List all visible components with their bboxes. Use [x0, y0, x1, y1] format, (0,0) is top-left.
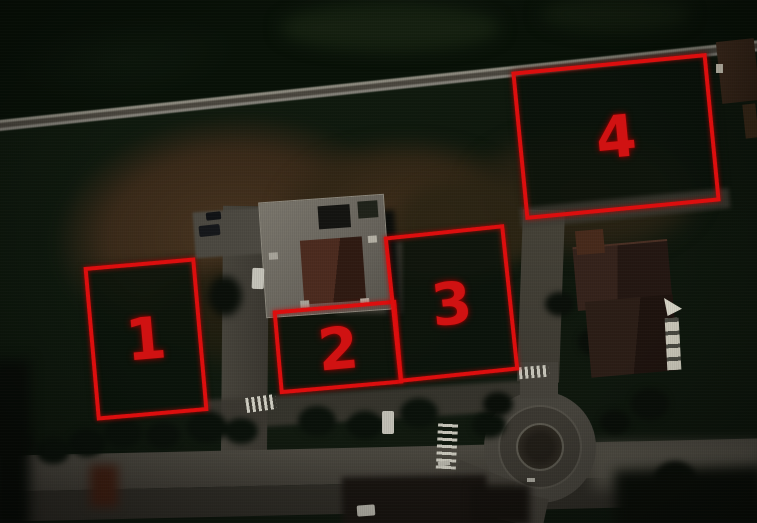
plot-number-4: 4 [593, 106, 639, 168]
satellite-aerial-map: 1 2 3 4 [0, 0, 757, 523]
bush [208, 276, 242, 316]
plot-outline-3[interactable]: 3 [384, 224, 520, 383]
tree-cluster [0, 360, 30, 523]
roof-fragment [90, 465, 118, 507]
car [252, 268, 265, 289]
roof-detail [269, 252, 278, 260]
car [357, 504, 376, 516]
car [198, 224, 220, 237]
plot-number-3: 3 [428, 273, 474, 335]
roof-detail [368, 235, 377, 243]
plot-outline-2[interactable]: 2 [273, 300, 404, 394]
tree-cluster [614, 465, 757, 523]
vehicle [716, 64, 723, 73]
shed [575, 229, 605, 255]
van [382, 411, 394, 434]
grass-patch [280, 4, 500, 52]
courtyard [318, 204, 352, 229]
balconies [665, 318, 682, 371]
house [742, 103, 757, 138]
road-marking [527, 478, 535, 482]
tiled-roof [300, 236, 366, 304]
plot-number-2: 2 [316, 318, 361, 379]
plot-outline-1[interactable]: 1 [84, 257, 209, 420]
plot-number-1: 1 [123, 308, 168, 369]
roof-section [357, 200, 378, 218]
plot-outline-4[interactable]: 4 [511, 53, 720, 220]
roundabout-island [516, 423, 564, 471]
tree-cluster [545, 292, 575, 316]
car [206, 211, 222, 221]
central-building [258, 194, 392, 319]
building [470, 485, 530, 523]
